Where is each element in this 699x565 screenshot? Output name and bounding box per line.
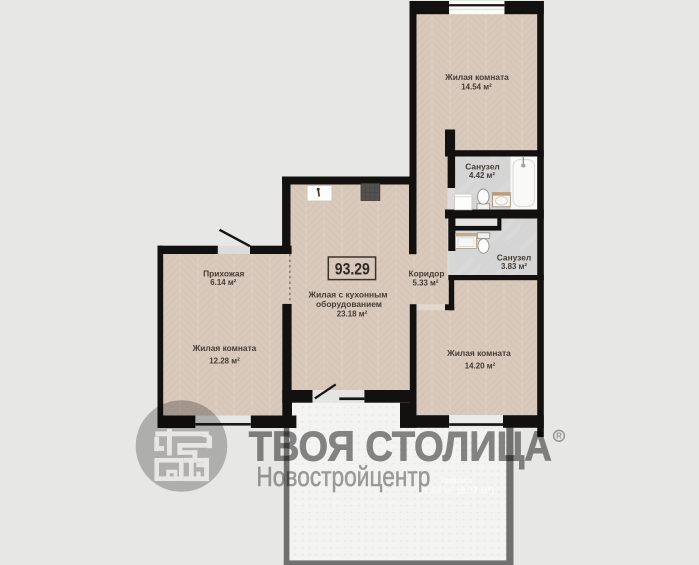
svg-text:оборудованием: оборудованием	[316, 299, 382, 309]
svg-text:3.83 м²: 3.83 м²	[501, 262, 527, 271]
svg-text:Жилая комната: Жилая комната	[192, 343, 257, 353]
svg-text:5.33 м²: 5.33 м²	[412, 279, 438, 288]
svg-text:Санузел: Санузел	[497, 253, 531, 263]
svg-text:93.29: 93.29	[335, 260, 370, 278]
svg-text:Коридор: Коридор	[408, 269, 444, 279]
svg-text:Жилая комната: Жилая комната	[446, 348, 511, 358]
svg-text:23.18 м²: 23.18 м²	[337, 310, 368, 319]
svg-text:Новостройцентр: Новостройцентр	[256, 461, 430, 492]
svg-text:Жилая с кухонным: Жилая с кухонным	[308, 290, 388, 300]
svg-text:4.42 м²: 4.42 м²	[469, 171, 495, 180]
svg-text:Жилая комната: Жилая комната	[444, 72, 509, 82]
svg-text:14.54 м²: 14.54 м²	[461, 83, 492, 92]
svg-text:Прихожая: Прихожая	[203, 269, 244, 279]
svg-text:Санузел: Санузел	[465, 162, 499, 172]
svg-text:R: R	[556, 432, 562, 441]
svg-text:14.20 м²: 14.20 м²	[465, 362, 496, 371]
svg-text:6.14 м²: 6.14 м²	[210, 278, 236, 287]
svg-text:12.28 м²: 12.28 м²	[209, 357, 240, 366]
